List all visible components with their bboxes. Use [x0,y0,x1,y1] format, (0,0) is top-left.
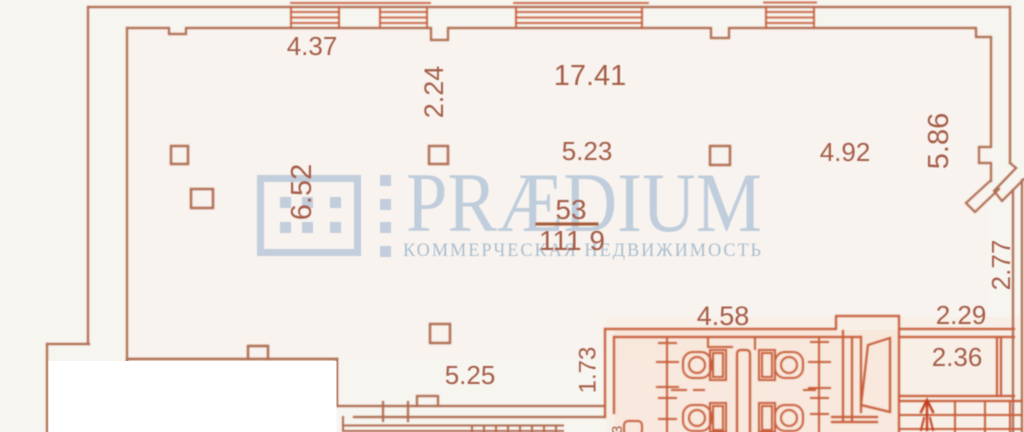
svg-text:2.77: 2.77 [986,240,1016,291]
svg-text:4.37: 4.37 [287,31,338,61]
svg-text:5.25: 5.25 [445,360,496,390]
svg-text:4.58: 4.58 [697,301,750,331]
svg-text:2.29: 2.29 [936,300,987,330]
svg-text:4.92: 4.92 [820,137,871,167]
svg-text:2.36: 2.36 [932,342,983,372]
svg-text:2.24: 2.24 [419,66,449,119]
svg-text:111 9: 111 9 [539,225,605,256]
svg-text:1.73: 1.73 [575,347,602,394]
svg-text:6.52: 6.52 [286,164,318,220]
svg-text:17.41: 17.41 [554,60,627,92]
svg-text:53: 53 [555,194,586,225]
svg-text:5.86: 5.86 [923,113,955,169]
svg-text:3: 3 [609,426,626,432]
svg-text:5.23: 5.23 [562,136,613,166]
